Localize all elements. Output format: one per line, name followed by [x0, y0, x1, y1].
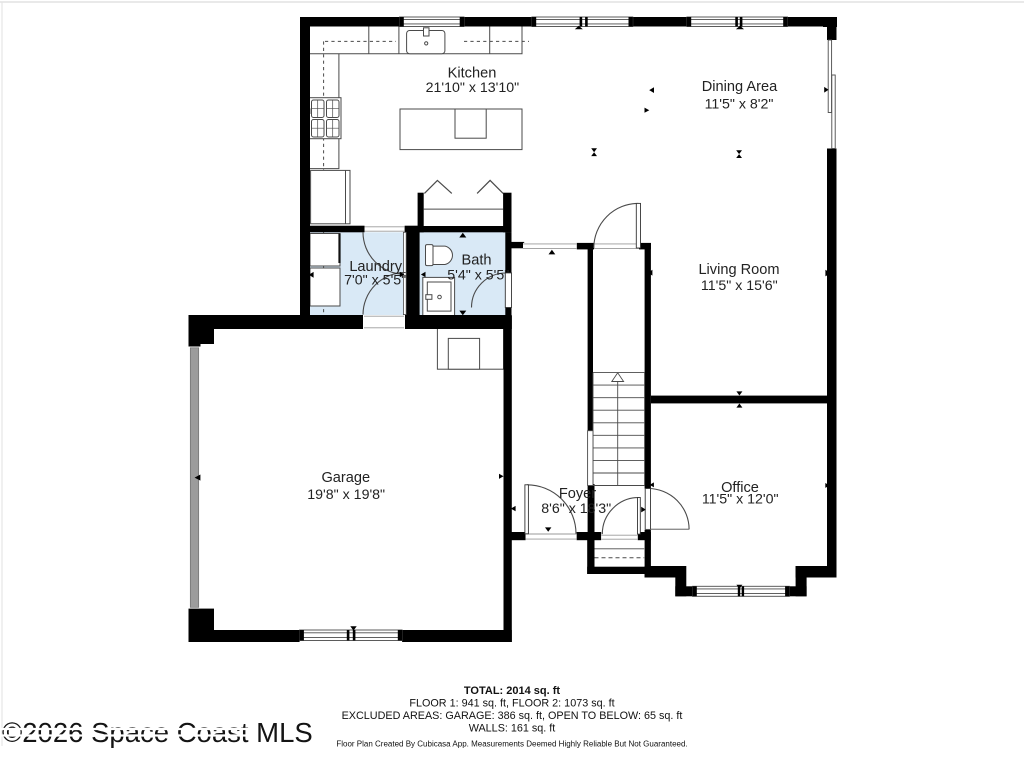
svg-text:7'0" x 5'5": 7'0" x 5'5" [344, 273, 406, 289]
svg-text:TOTAL: 2014 sq. ft: TOTAL: 2014 sq. ft [464, 685, 561, 697]
svg-text:8'6" x 18'3": 8'6" x 18'3" [541, 501, 611, 517]
svg-text:Floor Plan Created By Cubicasa: Floor Plan Created By Cubicasa App. Meas… [336, 739, 687, 748]
svg-text:Dining Area: Dining Area [702, 79, 778, 95]
svg-text:5'4" x 5'5": 5'4" x 5'5" [447, 268, 509, 284]
svg-text:EXCLUDED AREAS: GARAGE: 386 sq: EXCLUDED AREAS: GARAGE: 386 sq. ft, OPEN… [342, 710, 683, 722]
svg-text:11'5" x 12'0": 11'5" x 12'0" [702, 492, 779, 508]
svg-text:WALLS: 161 sq. ft: WALLS: 161 sq. ft [469, 722, 556, 734]
svg-text:19'8" x 19'8": 19'8" x 19'8" [307, 487, 385, 503]
svg-text:Garage: Garage [321, 470, 370, 486]
svg-text:Foyer: Foyer [559, 486, 596, 502]
svg-text:Living Room: Living Room [698, 262, 779, 278]
svg-text:©2026 Space Coast MLS: ©2026 Space Coast MLS [2, 717, 313, 748]
svg-text:Bath: Bath [461, 252, 491, 268]
svg-text:11'5" x 8'2": 11'5" x 8'2" [705, 97, 774, 113]
svg-text:FLOOR 1: 941 sq. ft, FLOOR 2:: FLOOR 1: 941 sq. ft, FLOOR 2: 1073 sq. f… [409, 697, 614, 709]
svg-text:11'5" x 15'6": 11'5" x 15'6" [701, 278, 778, 294]
svg-text:21'10" x 13'10": 21'10" x 13'10" [426, 80, 520, 96]
